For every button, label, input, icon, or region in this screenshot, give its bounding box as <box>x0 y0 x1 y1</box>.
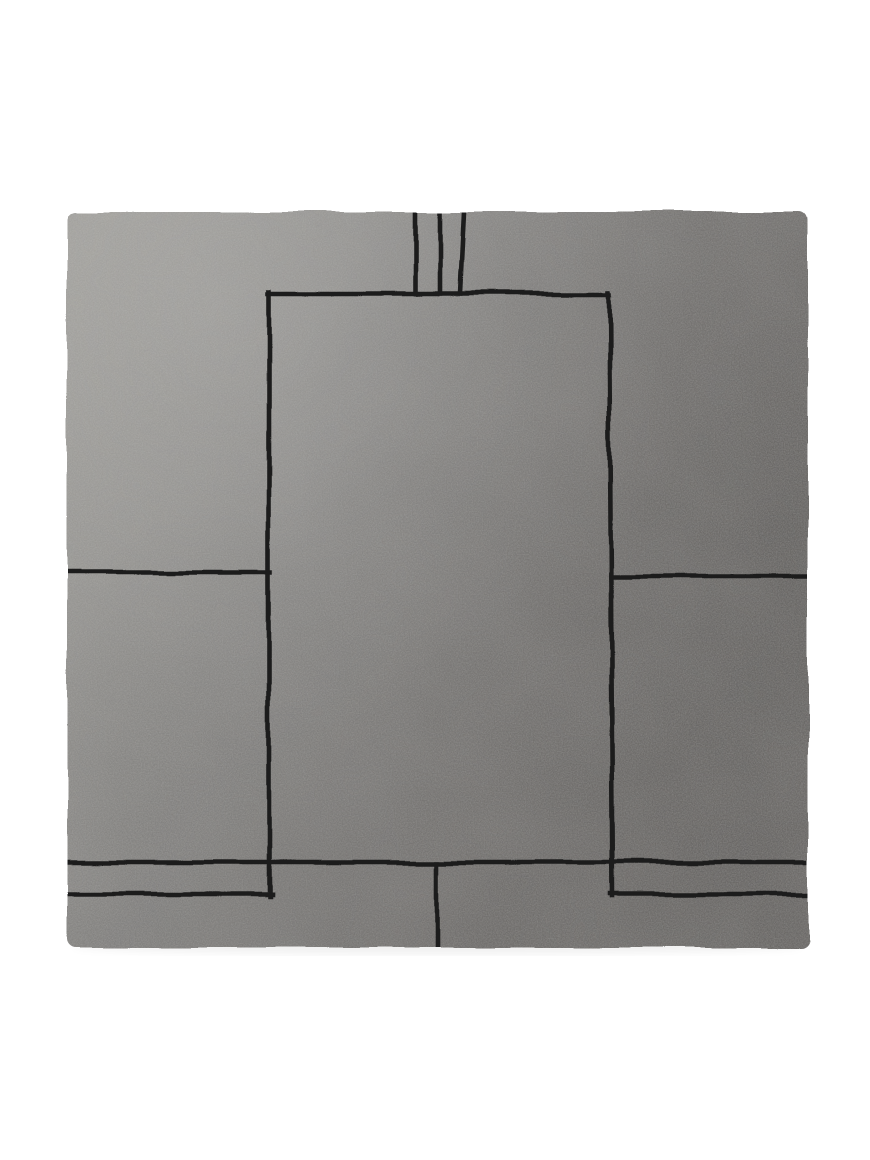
rug-svg <box>0 0 870 1160</box>
rug-texture-grain-dark <box>67 212 808 948</box>
rug-shape <box>67 212 808 948</box>
rug-image <box>0 0 870 1160</box>
product-photo <box>0 0 870 1160</box>
